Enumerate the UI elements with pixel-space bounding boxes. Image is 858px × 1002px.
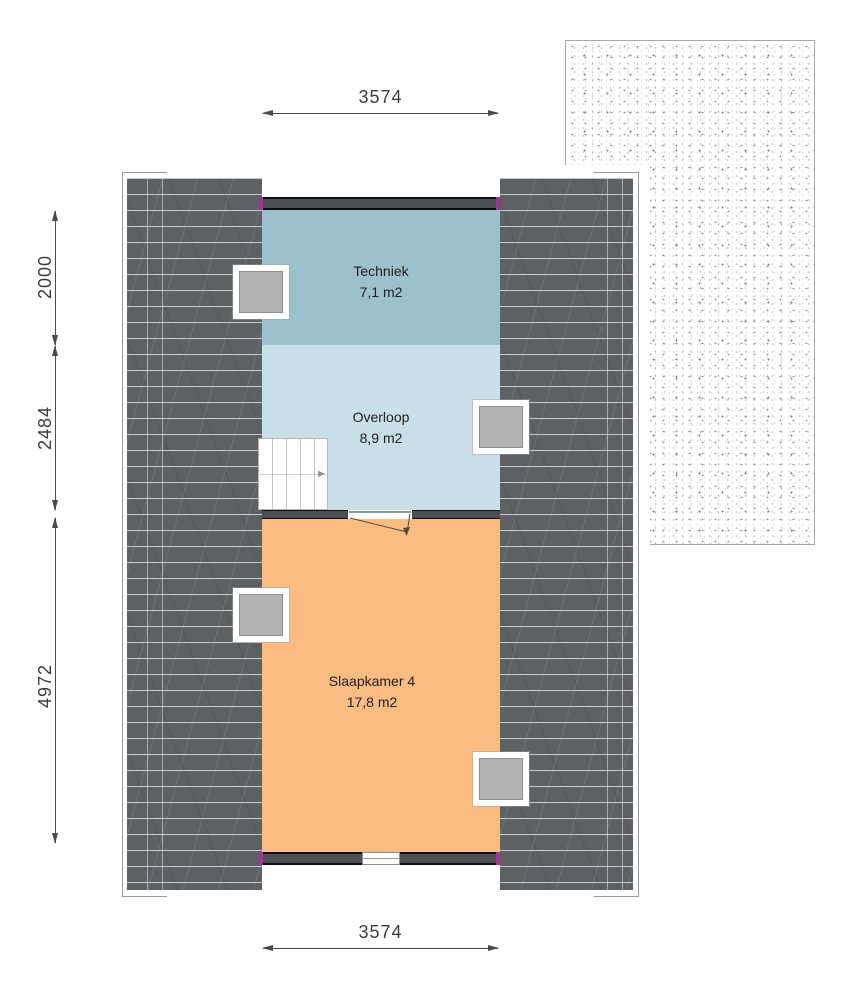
room-name: Slaapkamer 4 — [253, 671, 491, 692]
dimension-value-bottom: 3574 — [263, 922, 498, 943]
wall-middle-left — [262, 510, 348, 519]
roof-window — [473, 400, 529, 454]
stairs-direction-arrow-icon: ► — [316, 469, 327, 480]
arrowhead-icon — [488, 945, 499, 951]
roof-batten-line — [147, 178, 148, 890]
roof-window-glass — [479, 758, 523, 800]
room-area: 8,9 m2 — [262, 428, 500, 449]
arrowhead-icon — [52, 345, 58, 356]
roof-batten-line — [622, 178, 623, 890]
roof-window-glass — [239, 271, 283, 313]
window — [362, 852, 400, 865]
dimension-value-left-2000: 2000 — [35, 217, 55, 337]
room-area: 7,1 m2 — [262, 282, 500, 303]
roof-window — [233, 265, 289, 319]
roof-batten-line — [607, 178, 608, 890]
dimension-line-left-2484 — [55, 346, 56, 510]
arrowhead-icon — [262, 110, 273, 116]
room-label-slaapkamer4: Slaapkamer 4 17,8 m2 — [253, 671, 491, 713]
arrowhead-icon — [52, 517, 58, 528]
roof-window — [233, 588, 289, 642]
arrowhead-icon — [52, 500, 58, 511]
wall-bottom-right — [400, 852, 500, 865]
wall-junction-marker — [259, 197, 263, 210]
dimension-line-bottom — [263, 948, 498, 949]
roof-window-glass — [239, 594, 283, 636]
floor-plan: Techniek 7,1 m2 Overloop 8,9 m2 Slaapkam… — [0, 0, 858, 1002]
wall-junction-marker — [496, 852, 500, 865]
door-swing — [340, 505, 475, 565]
roof-window-glass — [479, 406, 523, 448]
dimension-value-left-4972: 4972 — [35, 626, 55, 746]
dimension-line-top — [263, 113, 498, 114]
room-name: Techniek — [262, 261, 500, 282]
roof-batten-line — [162, 178, 163, 890]
wall-junction-marker — [259, 852, 263, 865]
room-area: 17,8 m2 — [253, 692, 491, 713]
dimension-value-top: 3574 — [263, 87, 498, 108]
arrowhead-icon — [52, 833, 58, 844]
wall-top — [259, 197, 500, 210]
dimension-value-left-2484: 2484 — [35, 368, 55, 488]
wall-junction-marker — [496, 197, 500, 210]
dimension-line-left-4972 — [55, 518, 56, 843]
dimension-line-left-2000 — [55, 211, 56, 345]
room-name: Overloop — [262, 407, 500, 428]
room-label-overloop: Overloop 8,9 m2 — [262, 407, 500, 449]
roof-window — [473, 752, 529, 806]
arrowhead-icon — [488, 110, 499, 116]
room-label-techniek: Techniek 7,1 m2 — [262, 261, 500, 303]
arrowhead-icon — [262, 945, 273, 951]
wall-bottom-left — [259, 852, 362, 865]
